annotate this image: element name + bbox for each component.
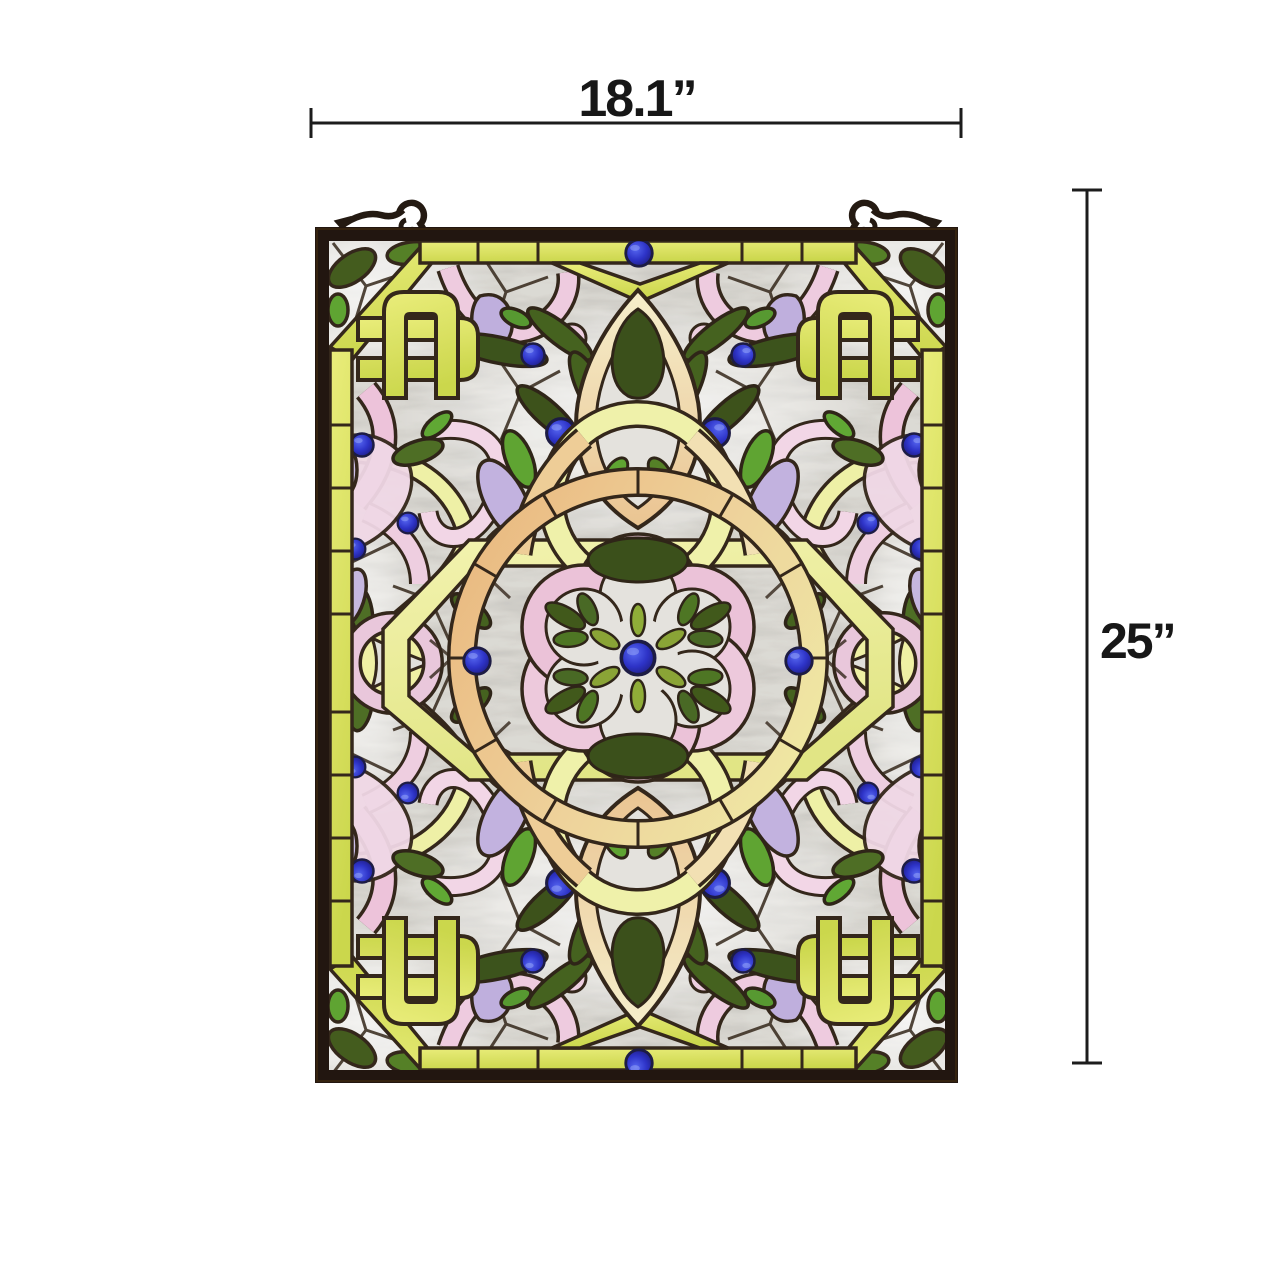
svg-text:25”: 25” bbox=[1100, 613, 1175, 669]
svg-text:18.1”: 18.1” bbox=[578, 70, 695, 128]
